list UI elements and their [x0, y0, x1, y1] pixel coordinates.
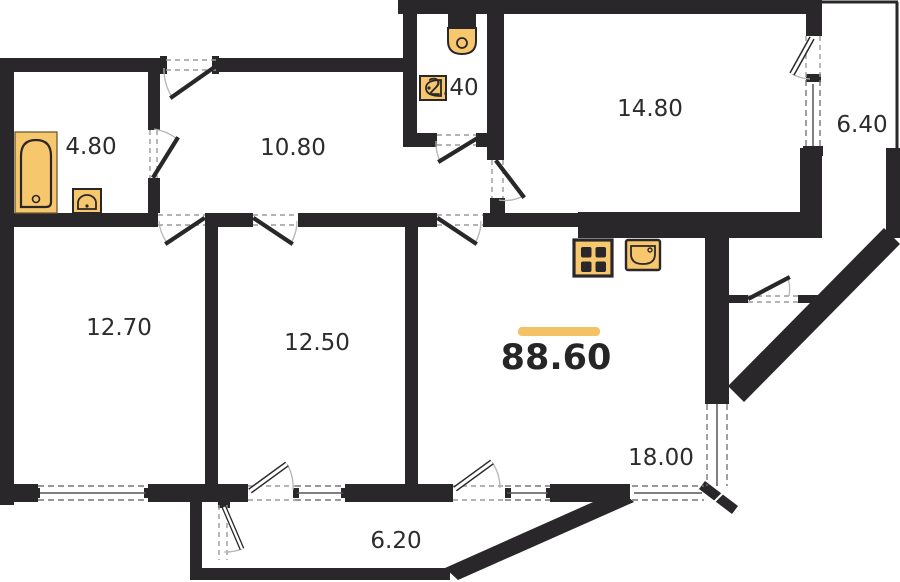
room-label-wc: 2.40	[427, 75, 478, 101]
room-label-room-mid: 12.50	[284, 330, 350, 356]
total-area-accent-bar	[518, 327, 600, 336]
bathroom-sink-icon	[73, 189, 101, 213]
room-label-room-left: 12.70	[86, 315, 152, 341]
toilet-icon	[448, 14, 476, 54]
room-label-balcony-right: 6.40	[836, 112, 887, 138]
corner-window-post	[702, 485, 735, 510]
bathtub-icon	[15, 132, 57, 213]
total-area-label: 88.60	[501, 338, 612, 378]
room-label-bathroom: 4.80	[65, 134, 116, 160]
room-label-hallway: 10.80	[260, 135, 326, 161]
room-label-bedroom: 14.80	[617, 96, 683, 122]
room-label-kitchen: 18.00	[628, 445, 694, 471]
kitchen-sink-icon	[626, 240, 660, 270]
stove-icon	[574, 240, 612, 276]
room-label-balcony-bottom: 6.20	[370, 528, 421, 554]
floor-plan: 4.80 10.80 2.40 14.80 6.40 12.70 12.50 8…	[0, 0, 900, 582]
